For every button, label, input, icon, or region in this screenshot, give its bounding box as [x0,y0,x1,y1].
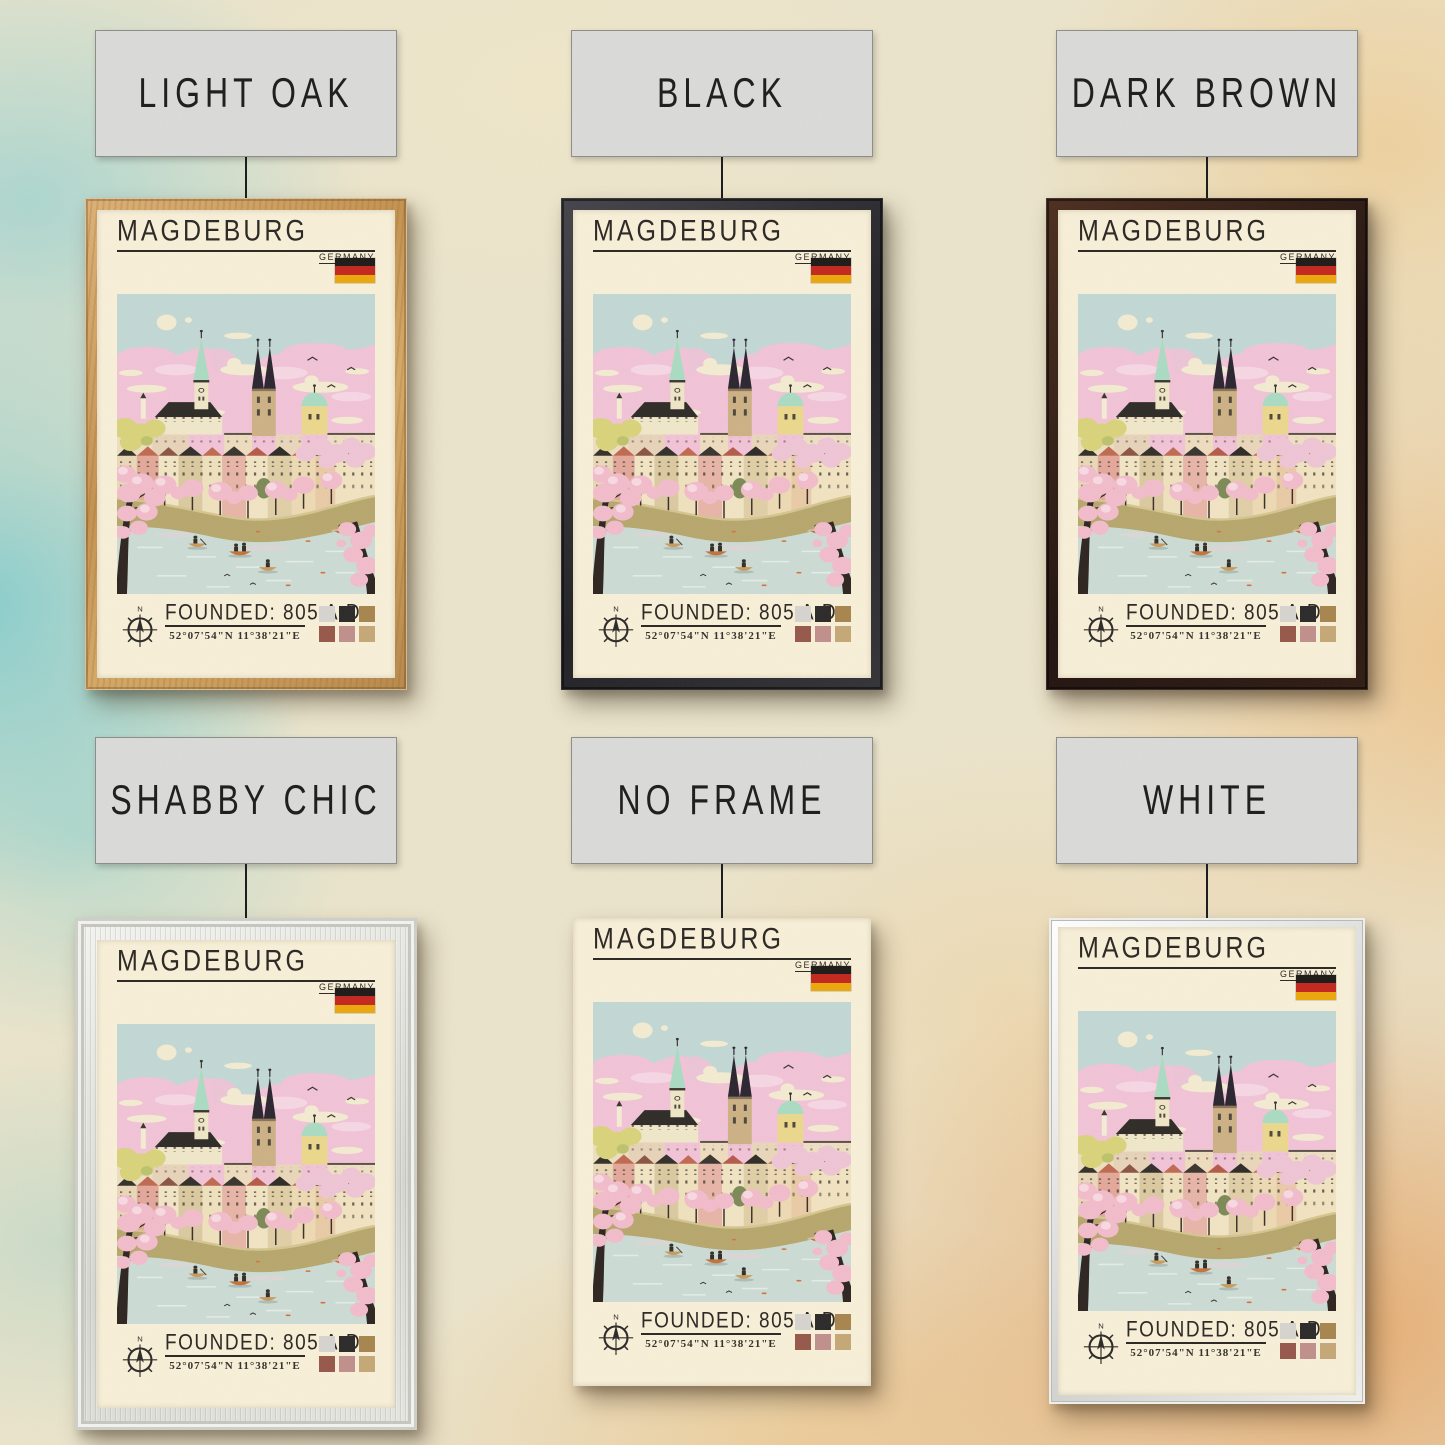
palette-swatch [339,626,355,642]
flag-stripe-gold [1296,992,1336,1000]
palette-swatch [319,626,335,642]
color-palette [1280,606,1336,642]
poster-header: MAGDEBURG GERMANY [593,220,851,252]
variant-black: BLACK MAGDEBURG GERMANY N FOUNDED: 805 A… [552,30,892,690]
palette-swatch [795,606,811,622]
variant-shabby-chic: SHABBY CHIC MAGDEBURG GERMANY N FOUNDED:… [76,737,416,1430]
poster: MAGDEBURG GERMANY N FOUNDED: 805 A.D.. 5… [97,940,395,1408]
flag-stripe-black [811,966,851,974]
poster: MAGDEBURG GERMANY N FOUNDED: 805 A.D.. 5… [97,210,395,678]
hanging-wire [245,157,247,198]
frame-style-label: BLACK [657,69,787,117]
poster-frame-light-oak[interactable]: MAGDEBURG GERMANY N FOUNDED: 805 A.D.. 5… [85,198,407,690]
poster-title: MAGDEBURG [593,922,784,957]
founded-block: FOUNDED: 805 A.D.. 52°07'54"N 11°38'21"E [165,604,305,642]
palette-swatch [835,1314,851,1330]
poster-frame-dark-brown[interactable]: MAGDEBURG GERMANY N FOUNDED: 805 A.D.. 5… [1046,198,1368,690]
color-palette [795,606,851,642]
flag-stripe-black [335,258,375,266]
flag-stripe-red [335,266,375,274]
palette-swatch [1280,1343,1296,1359]
page-background: { "variants": [ {"id": "light-oak", "lab… [0,0,1445,1445]
color-palette [795,1314,851,1350]
founded-block: FOUNDED: 805 A.D.. 52°07'54"N 11°38'21"E [165,1334,305,1372]
poster: MAGDEBURG GERMANY N FOUNDED: 805 A.D.. 5… [573,210,871,678]
frame-style-card: SHABBY CHIC [95,737,397,864]
palette-swatch [1320,626,1336,642]
variant-no-frame: NO FRAME MAGDEBURG GERMANY N FOUNDED: 80… [552,737,892,1386]
palette-swatch [815,606,831,622]
palette-swatch [1280,626,1296,642]
palette-swatch [795,1314,811,1330]
palette-swatch [795,626,811,642]
germany-flag-icon [335,988,375,1013]
germany-flag-icon [335,258,375,283]
frame-style-card: LIGHT OAK [95,30,397,157]
germany-flag-icon [1296,258,1336,283]
svg-text:N: N [613,605,619,614]
compass-rose-icon: N [595,1310,637,1358]
founded-underline: FOUNDED: 805 A.D.. [641,603,781,627]
poster-frame-black[interactable]: MAGDEBURG GERMANY N FOUNDED: 805 A.D.. 5… [561,198,883,690]
compass-rose-icon: N [119,1332,161,1380]
poster-header: MAGDEBURG GERMANY [117,220,375,252]
founded-underline: FOUNDED: 805 A.D.. [641,1311,781,1335]
compass-rose-icon: N [1080,602,1122,650]
frame-style-card: BLACK [571,30,873,157]
poster-footer: N FOUNDED: 805 A.D.. 52°07'54"N 11°38'21… [117,602,375,668]
palette-swatch [319,1356,335,1372]
palette-swatch [815,1334,831,1350]
flag-stripe-gold [811,275,851,283]
founded-block: FOUNDED: 805 A.D.. 52°07'54"N 11°38'21"E [1126,1321,1266,1359]
poster-header: MAGDEBURG GERMANY [1078,220,1336,252]
palette-swatch [1280,1323,1296,1339]
germany-flag-icon [1296,975,1336,1000]
palette-swatch [835,606,851,622]
compass-rose-icon: N [595,602,637,650]
flag-stripe-gold [335,275,375,283]
poster-frame-white[interactable]: MAGDEBURG GERMANY N FOUNDED: 805 A.D.. 5… [1049,918,1365,1404]
coordinates-text: 52°07'54"N 11°38'21"E [1126,1347,1266,1359]
palette-swatch [1320,1343,1336,1359]
flag-stripe-red [1296,983,1336,991]
poster-title: MAGDEBURG [117,944,308,979]
flag-stripe-red [811,266,851,274]
svg-text:N: N [1098,1322,1104,1331]
palette-swatch [339,606,355,622]
poster-frame-shabby-chic[interactable]: MAGDEBURG GERMANY N FOUNDED: 805 A.D.. 5… [75,918,417,1430]
flag-stripe-black [1296,258,1336,266]
flag-stripe-black [335,988,375,996]
palette-swatch [359,626,375,642]
flag-stripe-red [1296,266,1336,274]
palette-swatch [1300,1323,1316,1339]
magdeburg-cityscape-illustration [117,1024,375,1324]
palette-swatch [339,1336,355,1352]
poster-footer: N FOUNDED: 805 A.D.. 52°07'54"N 11°38'21… [1078,602,1336,668]
magdeburg-cityscape-illustration [1078,294,1336,594]
magdeburg-cityscape-illustration [117,294,375,594]
hanging-wire [721,864,723,918]
coordinates-text: 52°07'54"N 11°38'21"E [641,630,781,642]
frame-style-label: SHABBY CHIC [110,776,381,824]
flag-stripe-gold [335,1005,375,1013]
hanging-wire [721,157,723,198]
magdeburg-cityscape-illustration [593,1002,851,1302]
founded-underline: FOUNDED: 805 A.D.. [1126,603,1266,627]
svg-text:N: N [613,1313,619,1322]
variant-dark-brown: DARK BROWN MAGDEBURG GERMANY N FOUNDED: … [1037,30,1377,690]
frame-style-label: DARK BROWN [1072,69,1342,117]
palette-swatch [1300,1343,1316,1359]
palette-swatch [1280,606,1296,622]
poster-footer: N FOUNDED: 805 A.D.. 52°07'54"N 11°38'21… [593,1310,851,1376]
poster-footer: N FOUNDED: 805 A.D.. 52°07'54"N 11°38'21… [593,602,851,668]
frame-style-label: NO FRAME [618,776,827,824]
hanging-wire [1206,157,1208,198]
palette-swatch [359,606,375,622]
poster-header: MAGDEBURG GERMANY [1078,937,1336,969]
svg-text:N: N [137,605,143,614]
flag-stripe-red [335,996,375,1004]
poster: MAGDEBURG GERMANY N FOUNDED: 805 A.D.. 5… [1058,210,1356,678]
coordinates-text: 52°07'54"N 11°38'21"E [1126,630,1266,642]
magdeburg-cityscape-illustration [593,294,851,594]
coordinates-text: 52°07'54"N 11°38'21"E [641,1338,781,1350]
compass-rose-icon: N [1080,1319,1122,1367]
poster-header: MAGDEBURG GERMANY [117,950,375,982]
flag-stripe-gold [1296,275,1336,283]
svg-text:N: N [1098,605,1104,614]
poster-title: MAGDEBURG [593,214,784,249]
flag-stripe-black [811,258,851,266]
poster-title: MAGDEBURG [1078,214,1269,249]
palette-swatch [795,1334,811,1350]
palette-swatch [339,1356,355,1372]
founded-block: FOUNDED: 805 A.D.. 52°07'54"N 11°38'21"E [1126,604,1266,642]
coordinates-text: 52°07'54"N 11°38'21"E [165,630,305,642]
palette-swatch [1320,1323,1336,1339]
poster-title: MAGDEBURG [1078,931,1269,966]
frame-style-label: WHITE [1143,776,1271,824]
variant-light-oak: LIGHT OAK MAGDEBURG GERMANY N FOUNDED: 8… [76,30,416,690]
frame-style-card: WHITE [1056,737,1358,864]
poster: MAGDEBURG GERMANY N FOUNDED: 805 A.D.. 5… [1058,927,1356,1395]
frame-style-label: LIGHT OAK [138,69,353,117]
flag-stripe-black [1296,975,1336,983]
flag-stripe-red [811,974,851,982]
frame-style-card: DARK BROWN [1056,30,1358,157]
poster-footer: N FOUNDED: 805 A.D.. 52°07'54"N 11°38'21… [1078,1319,1336,1385]
germany-flag-icon [811,258,851,283]
palette-swatch [835,1334,851,1350]
palette-swatch [835,626,851,642]
palette-swatch [319,606,335,622]
palette-swatch [1300,626,1316,642]
founded-block: FOUNDED: 805 A.D.. 52°07'54"N 11°38'21"E [641,604,781,642]
flag-stripe-gold [811,983,851,991]
hanging-wire [245,864,247,918]
poster: MAGDEBURG GERMANY N FOUNDED: 805 A.D.. 5… [573,918,871,1386]
magdeburg-cityscape-illustration [1078,1011,1336,1311]
poster-frame-none[interactable]: MAGDEBURG GERMANY N FOUNDED: 805 A.D.. 5… [573,918,871,1386]
color-palette [319,606,375,642]
poster-header: MAGDEBURG GERMANY [593,928,851,960]
founded-block: FOUNDED: 805 A.D.. 52°07'54"N 11°38'21"E [641,1312,781,1350]
poster-title: MAGDEBURG [117,214,308,249]
germany-flag-icon [811,966,851,991]
compass-rose-icon: N [119,602,161,650]
palette-swatch [815,1314,831,1330]
founded-underline: FOUNDED: 805 A.D.. [1126,1320,1266,1344]
palette-swatch [1320,606,1336,622]
color-palette [319,1336,375,1372]
color-palette [1280,1323,1336,1359]
frame-style-card: NO FRAME [571,737,873,864]
poster-footer: N FOUNDED: 805 A.D.. 52°07'54"N 11°38'21… [117,1332,375,1398]
palette-swatch [359,1356,375,1372]
palette-swatch [815,626,831,642]
variant-white: WHITE MAGDEBURG GERMANY N FOUNDED: 805 A… [1037,737,1377,1404]
coordinates-text: 52°07'54"N 11°38'21"E [165,1360,305,1372]
palette-swatch [1300,606,1316,622]
svg-text:N: N [137,1335,143,1344]
palette-swatch [359,1336,375,1352]
founded-underline: FOUNDED: 805 A.D.. [165,603,305,627]
founded-underline: FOUNDED: 805 A.D.. [165,1333,305,1357]
hanging-wire [1206,864,1208,918]
palette-swatch [319,1336,335,1352]
